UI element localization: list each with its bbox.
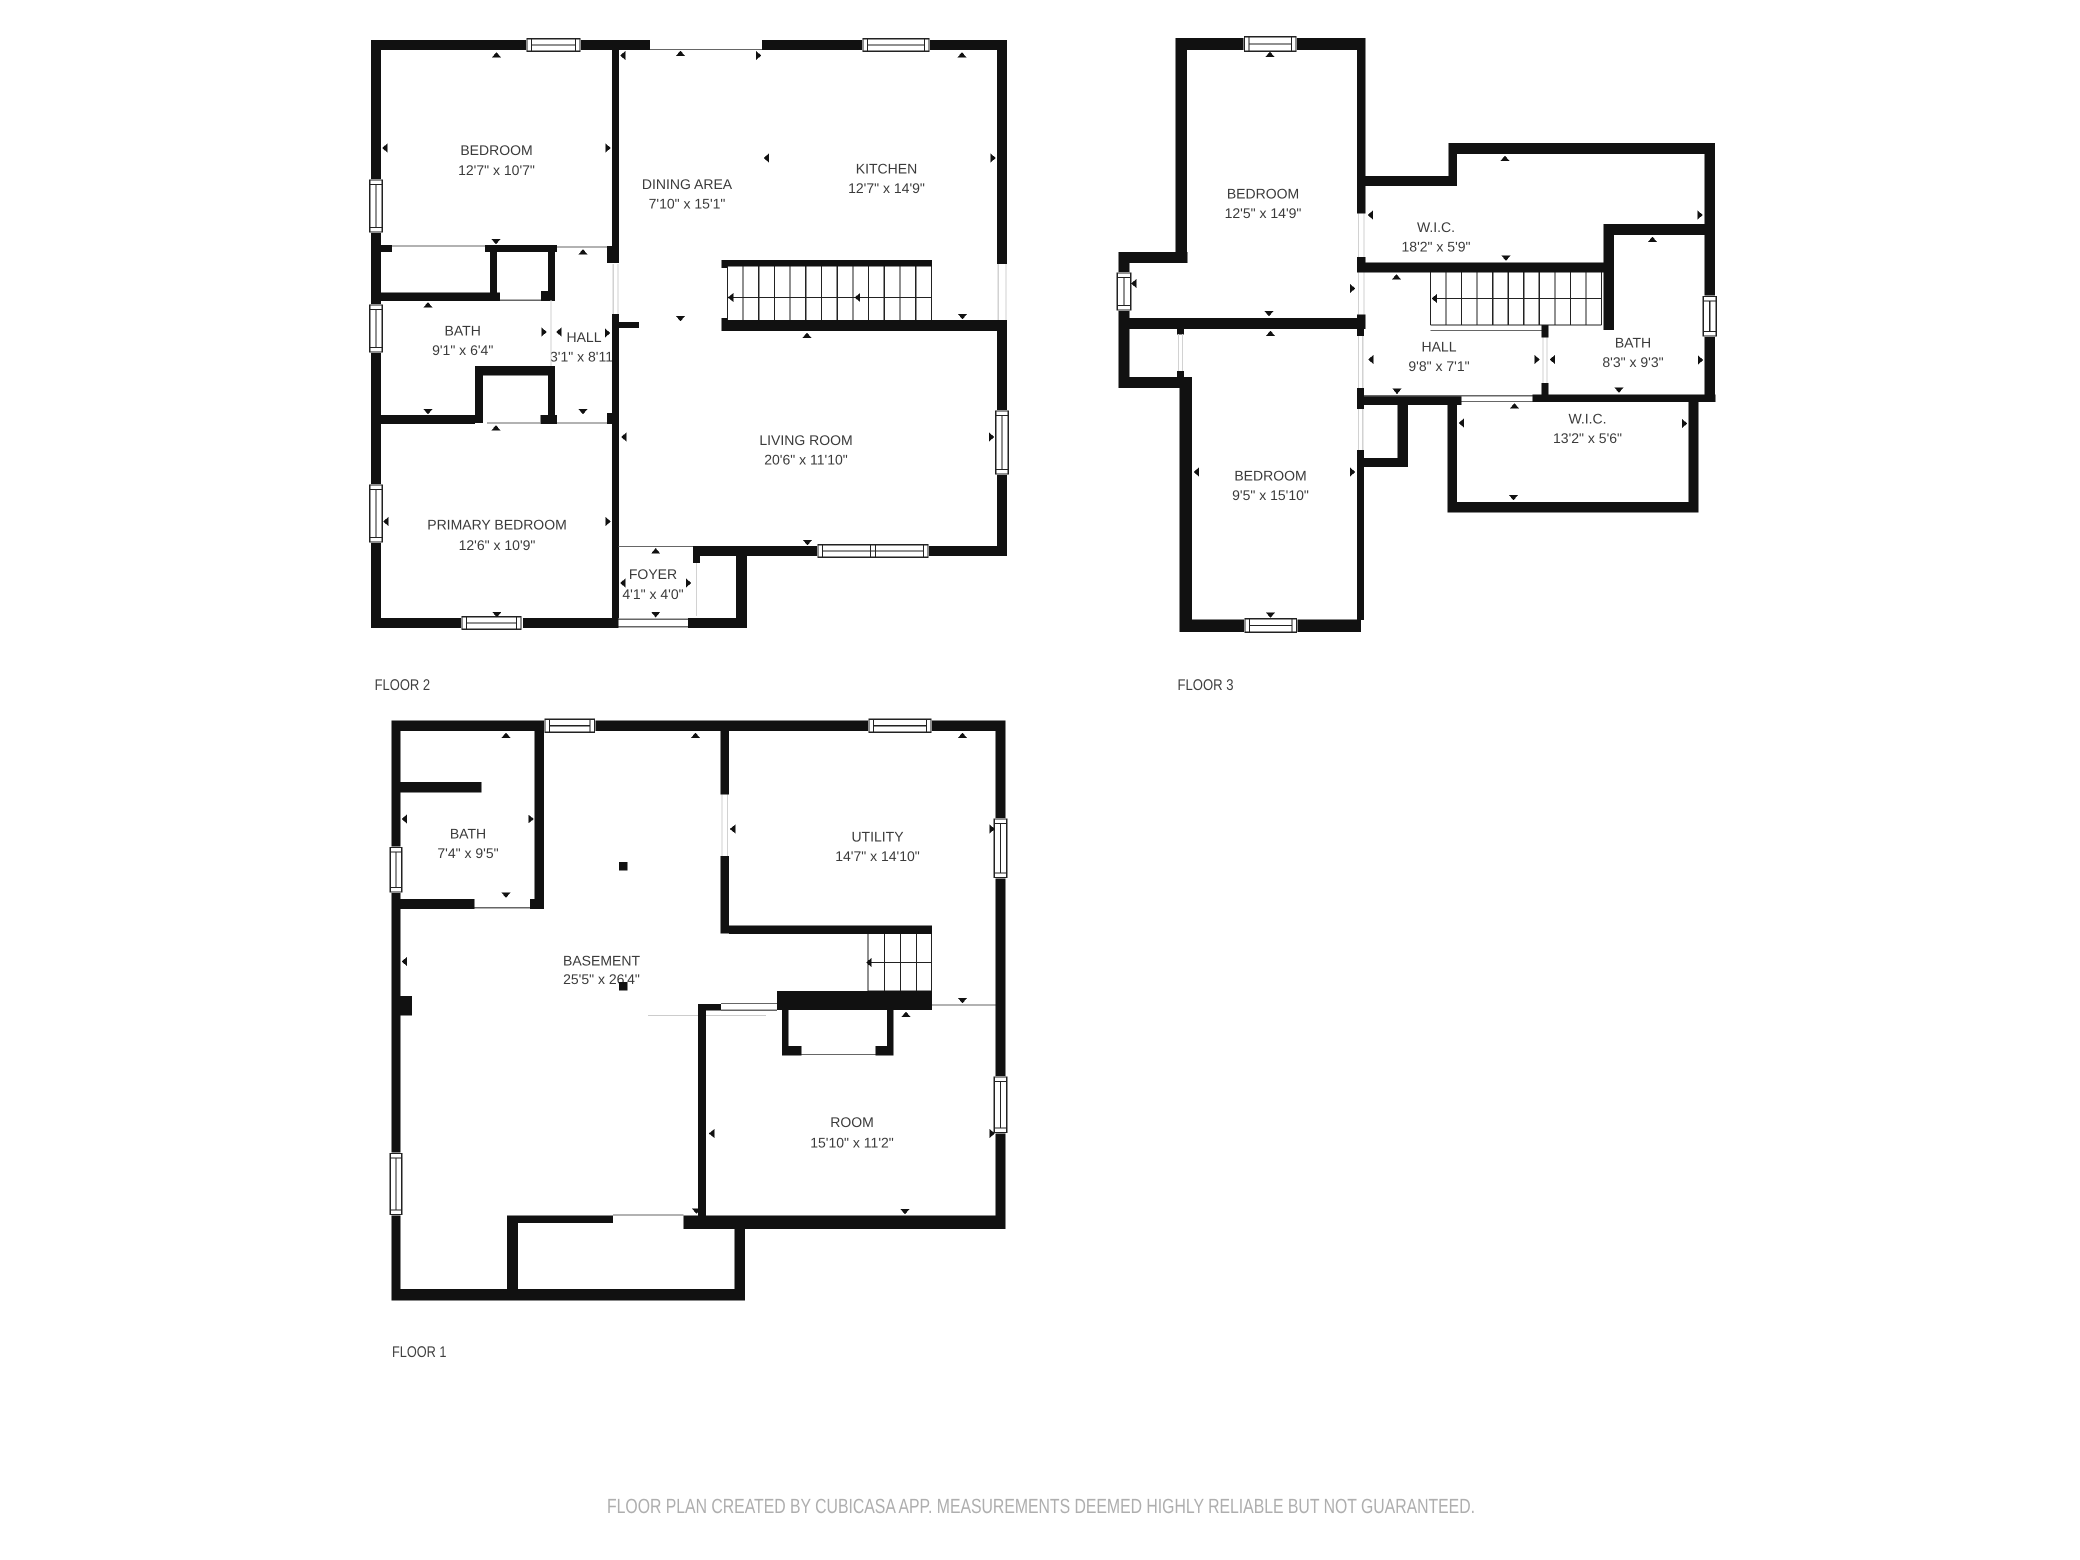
svg-text:BASEMENT: BASEMENT [563,953,640,969]
svg-text:W.I.C.: W.I.C. [1417,219,1455,235]
svg-text:BATH: BATH [1615,335,1651,351]
svg-text:HALL: HALL [1421,339,1456,355]
svg-text:12'6" x 10'9": 12'6" x 10'9" [459,537,536,553]
svg-text:BEDROOM: BEDROOM [1234,468,1306,484]
svg-text:BATH: BATH [450,826,486,842]
svg-text:14'7" x 14'10": 14'7" x 14'10" [835,848,920,864]
svg-text:18'2" x 5'9": 18'2" x 5'9" [1402,239,1471,255]
svg-text:4'1" x 4'0": 4'1" x 4'0" [622,586,683,602]
svg-text:LIVING ROOM: LIVING ROOM [759,432,852,448]
svg-text:15'10" x 11'2": 15'10" x 11'2" [810,1135,894,1151]
svg-text:3'1" x 8'11": 3'1" x 8'11" [550,349,618,365]
svg-text:KITCHEN: KITCHEN [856,161,917,177]
svg-text:20'6" x 11'10": 20'6" x 11'10" [764,452,848,468]
svg-text:FLOOR PLAN CREATED BY CUBICASA: FLOOR PLAN CREATED BY CUBICASA APP. MEAS… [607,1495,1475,1518]
svg-text:7'4" x 9'5": 7'4" x 9'5" [437,845,498,861]
svg-text:BEDROOM: BEDROOM [1227,186,1299,202]
svg-text:FLOOR 3: FLOOR 3 [1178,677,1234,694]
svg-text:W.I.C.: W.I.C. [1568,411,1606,427]
svg-text:BATH: BATH [445,323,481,339]
svg-text:FLOOR 1: FLOOR 1 [392,1344,447,1361]
svg-text:12'7" x 10'7": 12'7" x 10'7" [458,162,535,178]
svg-text:8'3" x 9'3": 8'3" x 9'3" [1602,354,1663,370]
svg-text:12'5" x 14'9": 12'5" x 14'9" [1225,205,1302,221]
svg-text:HALL: HALL [566,329,601,345]
svg-text:DINING AREA: DINING AREA [642,176,733,192]
svg-text:13'2" x 5'6": 13'2" x 5'6" [1553,430,1622,446]
svg-text:7'10" x 15'1": 7'10" x 15'1" [649,196,726,212]
svg-text:PRIMARY BEDROOM: PRIMARY BEDROOM [427,517,567,533]
svg-text:ROOM: ROOM [830,1114,874,1130]
svg-text:FOYER: FOYER [629,566,677,582]
svg-text:FLOOR 2: FLOOR 2 [375,677,431,694]
svg-text:9'5" x 15'10": 9'5" x 15'10" [1232,487,1309,503]
svg-text:9'8" x 7'1": 9'8" x 7'1" [1408,358,1469,374]
svg-text:25'5" x 26'4": 25'5" x 26'4" [563,971,640,987]
svg-text:BEDROOM: BEDROOM [460,142,532,158]
svg-text:UTILITY: UTILITY [851,829,904,845]
svg-text:12'7" x 14'9": 12'7" x 14'9" [848,180,925,196]
svg-text:9'1" x 6'4": 9'1" x 6'4" [432,342,493,358]
